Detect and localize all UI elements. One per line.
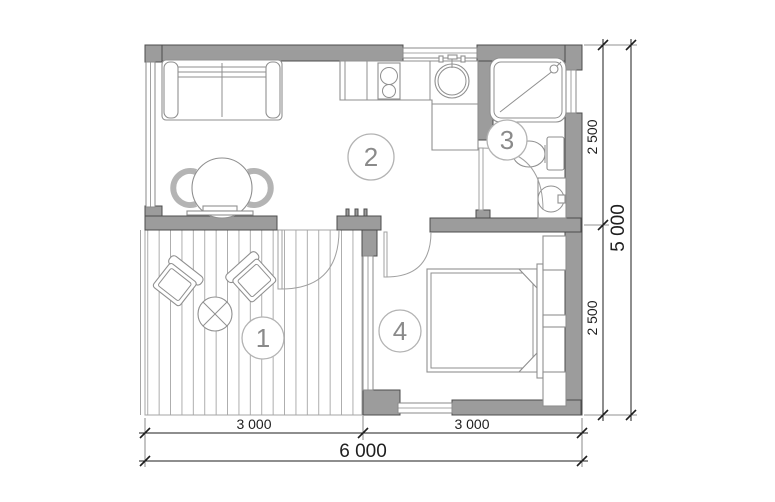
- living-room-window: [146, 62, 155, 207]
- nightstand-top: [543, 236, 566, 270]
- console-base: [187, 211, 253, 215]
- bedroom-bottom-window: [398, 403, 452, 413]
- kitchen-sink: [435, 55, 469, 98]
- headboard-shelf: [543, 315, 566, 327]
- room-label-3: 3: [487, 120, 527, 160]
- floor-plan: 1 2 3 4 3 000 3 000 6 000 2 500: [0, 0, 775, 502]
- headboard: [537, 264, 543, 378]
- room-number-3: 3: [500, 125, 514, 155]
- floor-plan-drawing: 1 2 3 4 3 000 3 000 6 000 2 500: [0, 0, 775, 502]
- dimension-bottom: 3 000 3 000 6 000: [139, 416, 588, 467]
- dim-bottom-left: 3 000: [236, 416, 271, 432]
- room-label-4: 4: [379, 310, 421, 352]
- nightstand-bottom: [543, 372, 566, 406]
- sofa: [162, 60, 282, 120]
- dim-right-top: 2 500: [584, 119, 600, 154]
- bathroom-window: [566, 70, 576, 113]
- dim-right-total: 5 000: [608, 204, 629, 252]
- shower: [490, 58, 566, 122]
- side-table: [198, 297, 232, 331]
- room-number-2: 2: [364, 142, 378, 172]
- dimension-right: 2 500 2 500 5 000: [584, 39, 637, 421]
- dim-bottom-right: 3 000: [454, 416, 489, 432]
- console-shelf: [203, 206, 237, 211]
- shower-head-icon: [550, 65, 558, 73]
- bedroom-door: [384, 232, 431, 277]
- room-label-2: 2: [348, 134, 394, 180]
- dining-table-set: [173, 158, 270, 218]
- stove: [378, 63, 400, 99]
- room-number-4: 4: [393, 316, 407, 346]
- bedroom-side-window: [363, 256, 373, 390]
- dim-right-bottom: 2 500: [584, 300, 600, 335]
- room-label-1: 1: [242, 317, 284, 359]
- room-number-1: 1: [256, 323, 270, 353]
- dim-bottom-total: 6 000: [339, 441, 387, 462]
- bed: [427, 264, 543, 378]
